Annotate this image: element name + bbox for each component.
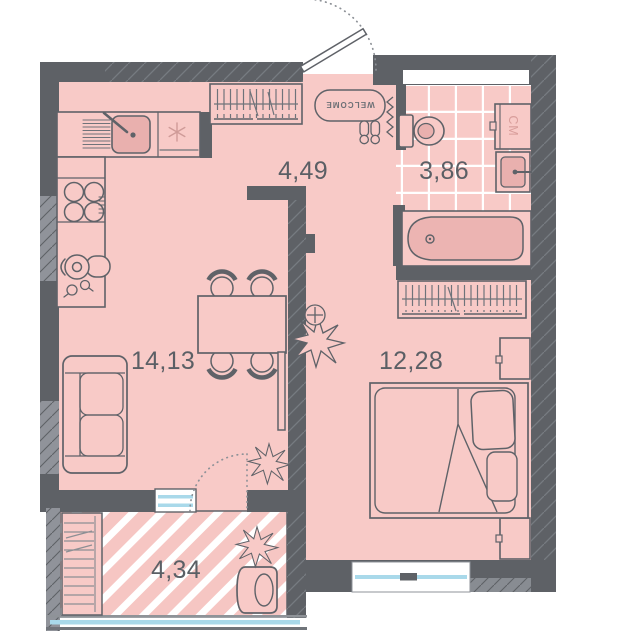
area-label-hallway: 4,49 xyxy=(278,157,328,185)
balcony-shelf xyxy=(62,513,102,615)
wall-bath-bottom xyxy=(396,266,531,280)
balcony-door-glass-1 xyxy=(158,495,193,499)
nightstand-bottom xyxy=(496,518,530,559)
tv-unit xyxy=(278,352,285,430)
washing-machine: СМ xyxy=(490,104,531,149)
pillow-large xyxy=(471,390,516,450)
bathroom-sink xyxy=(496,152,532,192)
sink-drain-icon xyxy=(130,132,135,137)
wall-bedroom-bottom-light-hatch xyxy=(470,578,531,592)
entrance-door-leaf xyxy=(300,29,366,72)
floor-plan-page: WELCOME СМ xyxy=(0,0,629,633)
nightstand-top xyxy=(496,338,530,379)
area-label-kitchen-living: 14,13 xyxy=(131,347,195,375)
wall-right-hatch xyxy=(531,55,556,592)
wall-pilaster xyxy=(306,234,315,253)
area-label-bathroom: 3,86 xyxy=(419,157,469,185)
balcony-door-window xyxy=(155,489,196,512)
doormat: WELCOME xyxy=(315,90,385,121)
toilet xyxy=(399,115,444,147)
balcony-glazing-glass xyxy=(50,620,300,625)
sofa xyxy=(63,356,127,473)
washing-machine-label: СМ xyxy=(506,115,520,136)
hall-wardrobe xyxy=(210,84,302,124)
wall-balcony-right-hatch xyxy=(287,512,306,618)
doormat-label: WELCOME xyxy=(325,100,374,109)
floor-plan: WELCOME СМ xyxy=(0,0,629,633)
bedroom-window-mullion xyxy=(400,573,417,581)
area-label-bedroom: 12,28 xyxy=(379,347,443,375)
dining-table xyxy=(198,296,286,353)
balcony-glazing-bottom-line xyxy=(46,627,307,630)
area-label-balcony: 4,34 xyxy=(151,556,201,584)
wall-left-light-band-2-hatch xyxy=(40,401,59,474)
wall-niche-window xyxy=(403,70,529,84)
wall-hall-bar xyxy=(247,186,306,200)
wall-left-light-band-1-hatch xyxy=(40,196,59,281)
wall-top-left-hatch xyxy=(105,62,303,82)
balcony-armchair xyxy=(237,567,277,613)
bed xyxy=(370,383,528,518)
wall-balcony-outer-left-hatch xyxy=(46,508,60,631)
pillow-small xyxy=(487,452,517,501)
bathtub xyxy=(402,211,531,266)
bedroom-wardrobe xyxy=(398,281,526,318)
wall-balcony-right-seg xyxy=(247,490,306,512)
balcony-door-glass-2 xyxy=(158,504,193,508)
